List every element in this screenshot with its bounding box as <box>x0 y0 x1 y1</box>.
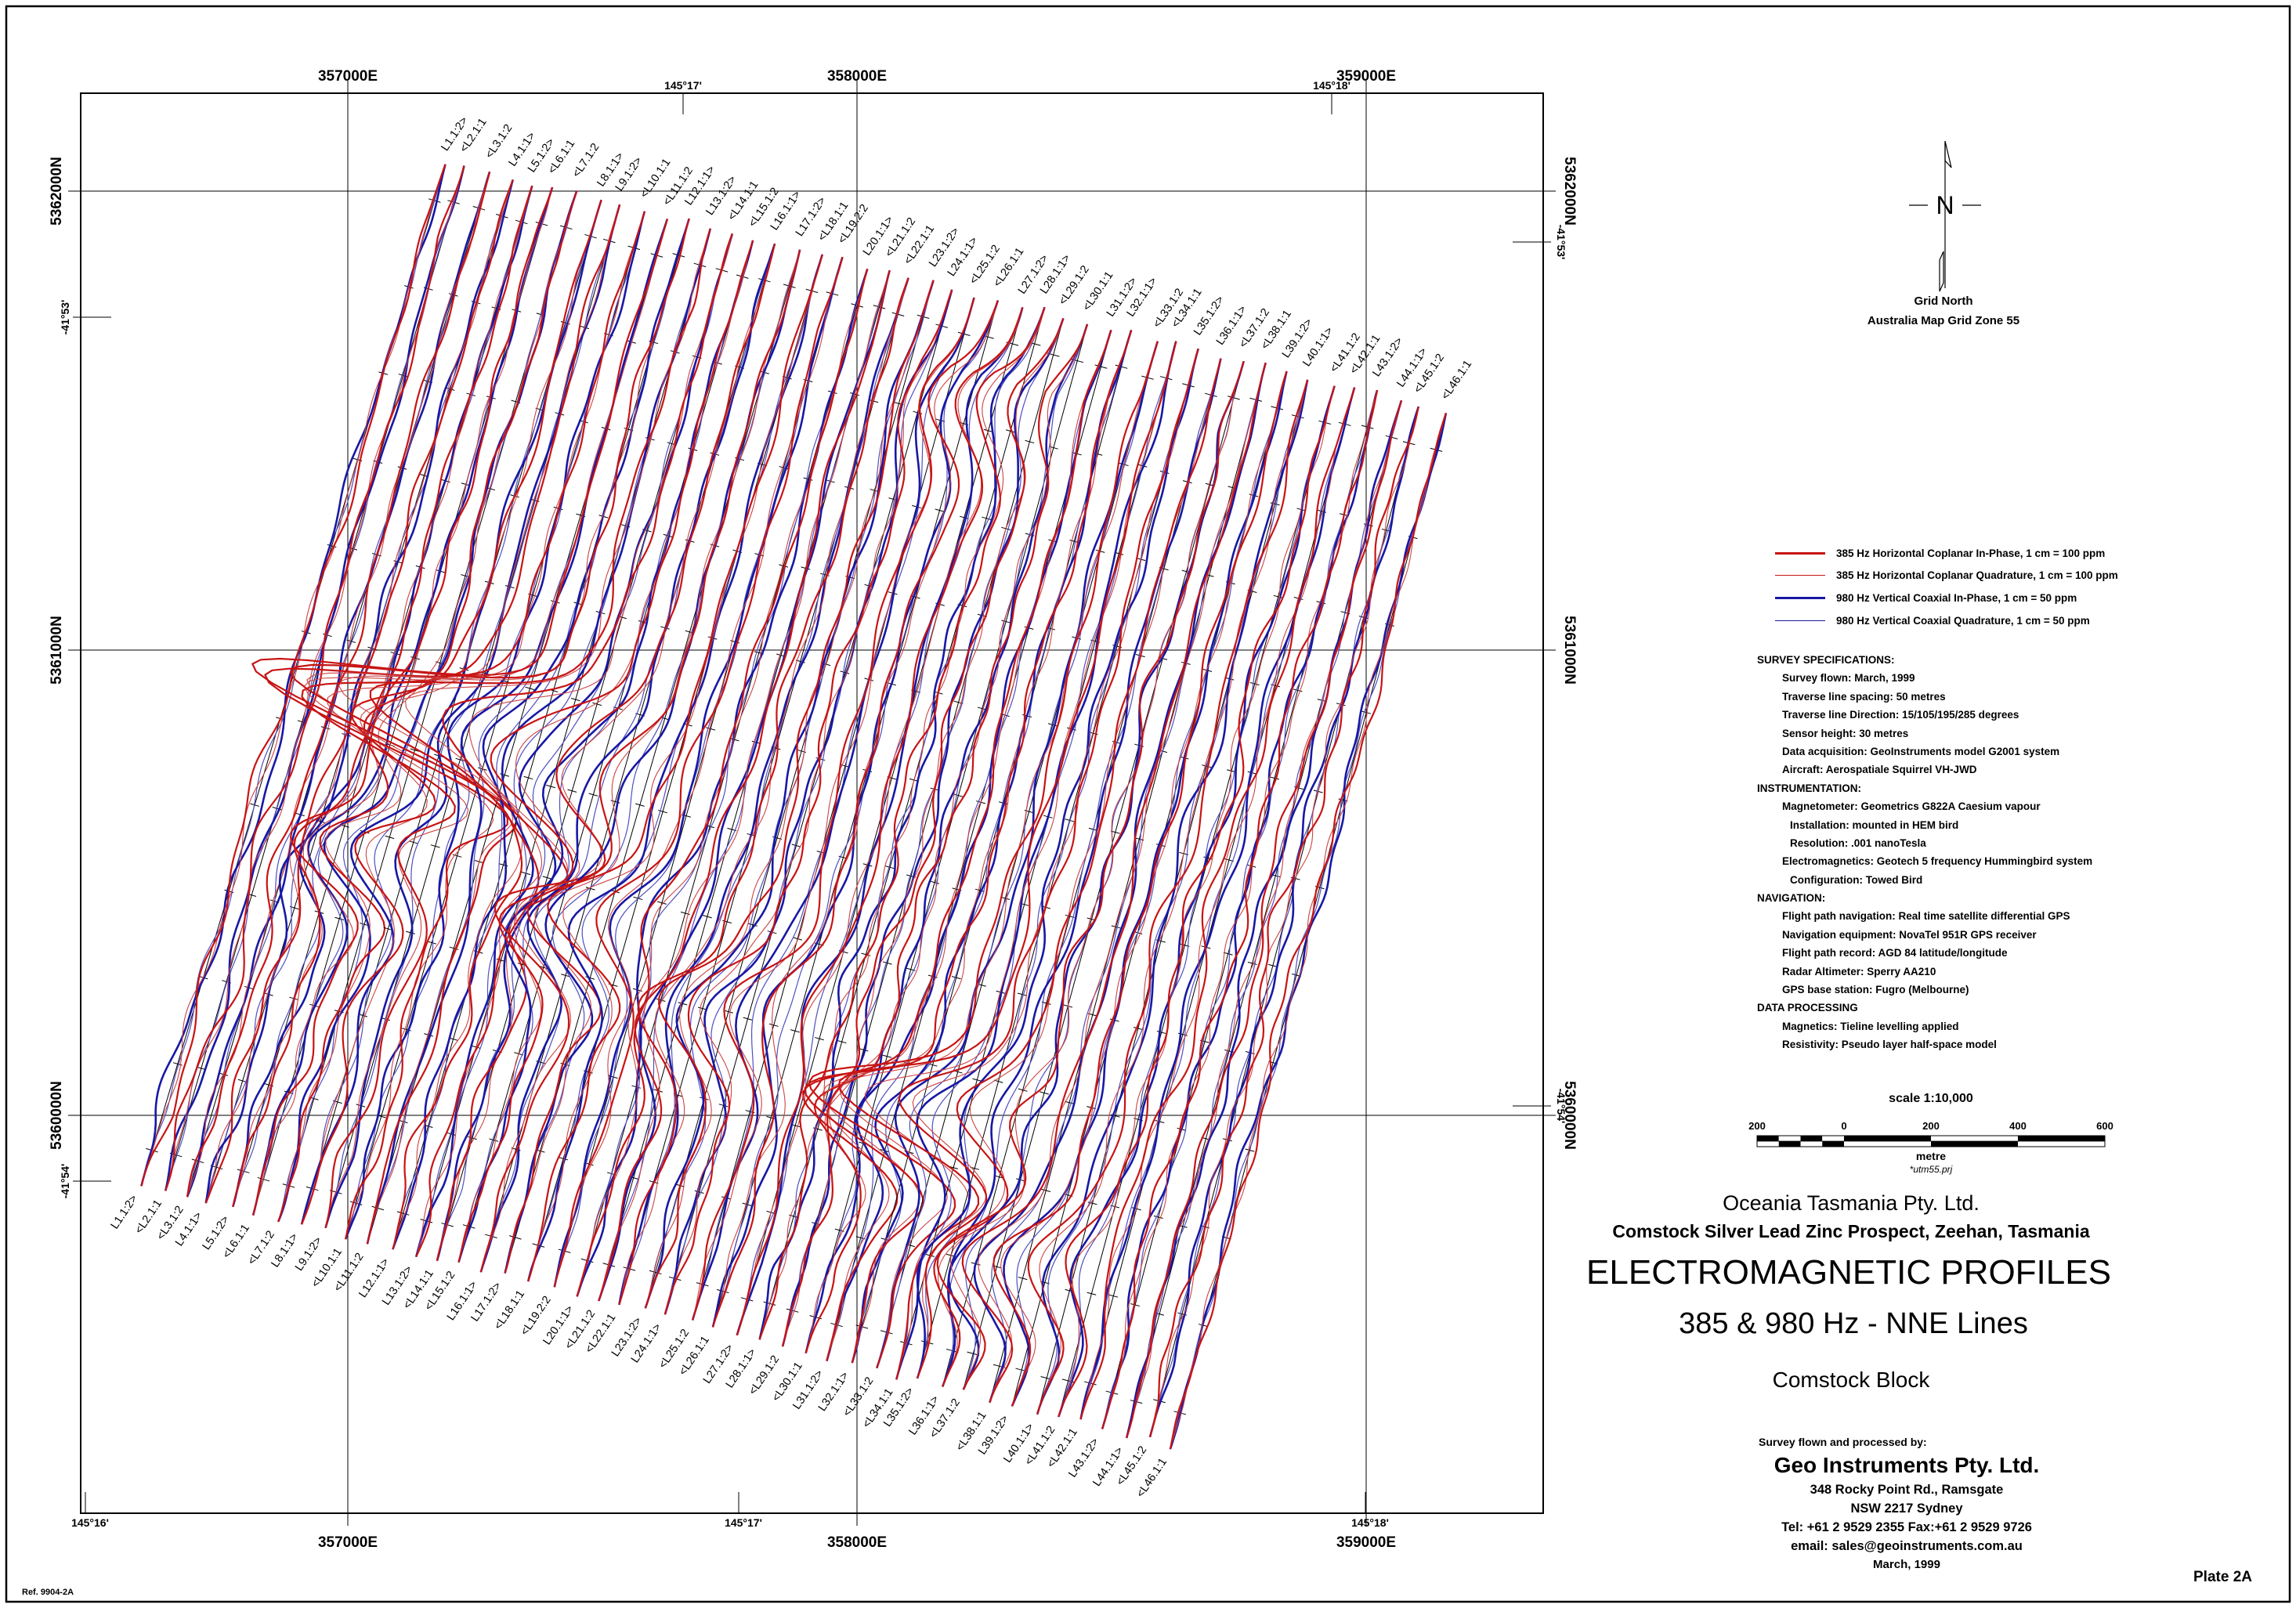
longitude-label-top: 145°17' <box>664 79 702 92</box>
spec-section-header: INSTRUMENTATION: <box>1757 782 2092 800</box>
flight-line: <L41.1:2<L41.1:2 <box>1022 331 1363 1468</box>
spec-item: Configuration: Towed Bird <box>1757 874 2092 892</box>
scale-bar: 2000200400600 <box>1748 1120 2113 1147</box>
title-main: ELECTROMAGNETIC PROFILES <box>1586 1253 2111 1292</box>
spec-item: Resistivity: Pseudo layer half-space mod… <box>1757 1039 2092 1057</box>
scale-bar-tick-label: 0 <box>1841 1120 1846 1132</box>
legend-label: 385 Hz Horizontal Coplanar Quadrature, 1… <box>1836 569 2118 581</box>
legend-line-sample <box>1775 575 1825 576</box>
northing-label-left: 5360000N <box>49 1081 65 1150</box>
flight-path <box>665 290 952 1314</box>
flight-line-label-top: <L46.1:1 <box>1439 358 1474 402</box>
scale-bar-tick-label: 600 <box>2096 1120 2113 1132</box>
flight-lines: L1.1:2>L1.1:2><L2.1:1<L2.1:1<L3.1:2<L3.1… <box>109 114 1475 1500</box>
spec-item: Flight path navigation: Real time satell… <box>1757 910 2092 928</box>
longitude-label-bottom: 145°17' <box>725 1516 762 1529</box>
northing-label-left: 5362000N <box>49 157 65 226</box>
spec-section-header: NAVIGATION: <box>1757 892 2092 910</box>
easting-label-top: 357000E <box>318 68 378 85</box>
credits-company: Geo Instruments Pty. Ltd. <box>1774 1453 2040 1478</box>
easting-label-bottom: 357000E <box>318 1534 378 1551</box>
legend-row: 385 Hz Horizontal Coplanar Quadrature, 1… <box>1775 565 2118 587</box>
north-arrow-subtitle: Australia Map Grid Zone 55 <box>1868 314 2019 327</box>
credits-address1: 348 Rocky Point Rd., Ramsgate <box>1810 1483 2004 1498</box>
flight-line: L23.1:2>L23.1:2> <box>609 226 962 1359</box>
spec-item: Data acquisition: GeoInstruments model G… <box>1757 746 2092 764</box>
north-arrow-title: Grid North <box>1915 294 1973 308</box>
spec-item: Radar Altimeter: Sperry AA210 <box>1757 966 2092 984</box>
scale-projection-file: *utm55.prj <box>1910 1164 1953 1175</box>
spec-item: Survey flown: March, 1999 <box>1757 672 2092 690</box>
flight-line: L1.1:2>L1.1:2> <box>109 114 471 1231</box>
spec-item: Magnetics: Tieline levelling applied <box>1757 1021 2092 1039</box>
scale-unit: metre <box>1916 1150 1946 1162</box>
survey-plate-page: 357000E357000E358000E358000E359000E35900… <box>0 0 2296 1608</box>
easting-label-top: 358000E <box>827 68 887 85</box>
credits-email: email: sales@geoinstruments.com.au <box>1791 1539 2023 1554</box>
spec-section-header: SURVEY SPECIFICATIONS: <box>1757 654 2092 672</box>
flight-line: L40.1:1>L40.1:1> <box>1001 325 1336 1465</box>
latitude-label-right: -41°53' <box>1555 225 1567 260</box>
latitude-label-left: -41°54' <box>59 1164 71 1199</box>
survey-specifications: SURVEY SPECIFICATIONS:Survey flown: Marc… <box>1757 654 2092 1057</box>
credits-intro: Survey flown and processed by: <box>1759 1436 1927 1448</box>
em-trace-redI <box>1029 380 1307 1415</box>
scale-bar-tick-label: 200 <box>1922 1120 1940 1132</box>
credits-phone: Tel: +61 2 9529 2355 Fax:+61 2 9529 9726 <box>1781 1520 2032 1535</box>
scale-bar-tick-label: 400 <box>2009 1120 2027 1132</box>
legend-label: 980 Hz Vertical Coaxial Quadrature, 1 cm… <box>1836 615 2090 627</box>
flight-line: L43.1:2>L43.1:2> <box>1066 335 1405 1480</box>
legend-line-sample <box>1775 597 1825 599</box>
longitude-label-bottom: 145°18' <box>1351 1516 1389 1529</box>
spec-item: Flight path record: AGD 84 latitude/long… <box>1757 947 2092 965</box>
scale-bar-tick-label: 200 <box>1748 1120 1766 1132</box>
legend-line-sample <box>1775 552 1825 555</box>
northing-label-left: 5361000N <box>49 616 65 685</box>
spec-item: Aircraft: Aerospatiale Squirrel VH-JWD <box>1757 764 2092 782</box>
easting-label-bottom: 358000E <box>827 1534 887 1551</box>
north-arrow-letter: N <box>1936 191 1954 219</box>
spec-item: Magnetometer: Geometrics G822A Caesium v… <box>1757 800 2092 818</box>
spec-section-header: DATA PROCESSING <box>1757 1002 2092 1020</box>
title-company: Oceania Tasmania Pty. Ltd. <box>1723 1191 1980 1216</box>
legend-row: 980 Hz Vertical Coaxial In-Phase, 1 cm =… <box>1775 587 2118 609</box>
legend-label: 980 Hz Vertical Coaxial In-Phase, 1 cm =… <box>1836 592 2077 604</box>
credits-date: March, 1999 <box>1873 1558 1940 1571</box>
spec-item: Traverse line Direction: 15/105/195/285 … <box>1757 709 2092 727</box>
em-trace-redQ <box>406 229 710 1257</box>
reference-number: Ref. 9904-2A <box>22 1588 74 1597</box>
spec-item: Sensor height: 30 metres <box>1757 728 2092 746</box>
legend-line-sample <box>1775 620 1825 621</box>
spec-item: GPS base station: Fugro (Melbourne) <box>1757 984 2092 1002</box>
longitude-label-top: 145°18' <box>1313 79 1350 92</box>
latitude-label-left: -41°53' <box>59 300 71 335</box>
spec-item: Electromagnetics: Geotech 5 frequency Hu… <box>1757 855 2092 873</box>
northing-label-right: 5362000N <box>1561 157 1578 226</box>
title-subtitle: 385 & 980 Hz - NNE Lines <box>1679 1307 2028 1341</box>
north-arrow-icon: N <box>1909 141 1981 291</box>
scale-title: scale 1:10,000 <box>1889 1092 1973 1106</box>
spec-item: Traverse line spacing: 50 metres <box>1757 691 2092 709</box>
credits-address2: NSW 2217 Sydney <box>1850 1501 1962 1516</box>
spec-item: Resolution: .001 nanoTesla <box>1757 837 2092 855</box>
spec-item: Navigation equipment: NovaTel 951R GPS r… <box>1757 929 2092 947</box>
northing-label-right: 5361000N <box>1561 616 1578 685</box>
legend-label: 385 Hz Horizontal Coplanar In-Phase, 1 c… <box>1836 547 2105 559</box>
em-trace-redI <box>963 363 1266 1403</box>
plate-number: Plate 2A <box>2193 1569 2252 1586</box>
latitude-label-right: -41°54' <box>1555 1089 1567 1124</box>
easting-label-bottom: 359000E <box>1336 1534 1396 1551</box>
legend: 385 Hz Horizontal Coplanar In-Phase, 1 c… <box>1775 542 2118 631</box>
longitude-label-bottom: 145°16' <box>71 1516 109 1529</box>
spec-item: Installation: mounted in HEM bird <box>1757 819 2092 837</box>
flight-line: <L46.1:1<L46.1:1 <box>1134 358 1474 1500</box>
title-project: Comstock Silver Lead Zinc Prospect, Zeeh… <box>1612 1221 2089 1242</box>
flight-line: <L42.1:1<L42.1:1 <box>1045 333 1383 1470</box>
flight-line: L35.1:2>L35.1:2> <box>881 294 1227 1429</box>
legend-row: 980 Hz Vertical Coaxial Quadrature, 1 cm… <box>1775 609 2118 632</box>
title-block-name: Comstock Block <box>1773 1368 1930 1393</box>
legend-row: 385 Hz Horizontal Coplanar In-Phase, 1 c… <box>1775 542 2118 565</box>
